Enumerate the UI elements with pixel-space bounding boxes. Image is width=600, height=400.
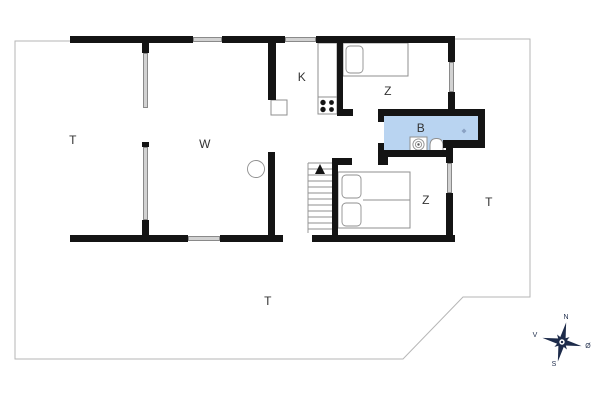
compass-south-label: S bbox=[552, 361, 557, 368]
wall-living-hall bbox=[268, 152, 275, 235]
label-bedroom-top: Z bbox=[384, 84, 392, 98]
wall-east-3 bbox=[446, 148, 453, 163]
stairs bbox=[308, 163, 332, 233]
plan-graphics: N V Ø S bbox=[0, 0, 600, 400]
cooktop bbox=[318, 97, 337, 114]
bathroom-door-marker bbox=[462, 129, 467, 134]
floorplan-canvas: N V Ø S T W K Z B Z T T bbox=[0, 0, 600, 400]
window-east-bedroom-top bbox=[449, 62, 454, 92]
compass-east-label: Ø bbox=[585, 343, 591, 350]
wall-bathroom-left-upper bbox=[378, 109, 384, 122]
wall-bedroom-lower-door-post bbox=[378, 157, 388, 165]
wall-living-kitchen bbox=[268, 36, 276, 100]
bed-double bbox=[338, 172, 410, 228]
compass-west-label: V bbox=[533, 332, 538, 339]
wall-bathroom-bottom bbox=[378, 150, 447, 157]
window-east-bedroom-lower bbox=[447, 163, 452, 193]
wall-bathroom-extension-bottom bbox=[443, 140, 485, 148]
window-west-upper bbox=[143, 53, 148, 108]
label-living-room: W bbox=[199, 137, 211, 151]
label-terrace-bottom: T bbox=[264, 294, 272, 308]
kitchen-counter bbox=[318, 43, 337, 97]
window-north-kitchen bbox=[285, 37, 316, 42]
wall-south-2 bbox=[220, 235, 283, 242]
wall-east-4 bbox=[446, 193, 453, 235]
wall-bathroom-top bbox=[378, 109, 485, 116]
wall-south-1 bbox=[70, 235, 188, 242]
wall-stairs-bedroom bbox=[332, 158, 338, 235]
wall-west-1 bbox=[142, 43, 149, 53]
label-bedroom-lower: Z bbox=[422, 193, 430, 207]
label-bathroom: B bbox=[417, 121, 426, 135]
wall-west-3 bbox=[142, 220, 149, 235]
label-kitchen: K bbox=[298, 70, 307, 84]
label-terrace-left: T bbox=[69, 133, 77, 147]
wall-kitchen-bedroom bbox=[337, 36, 343, 109]
wall-north-1 bbox=[70, 36, 193, 43]
wall-bedroom-top-door-post bbox=[337, 109, 353, 116]
wall-east-2 bbox=[448, 92, 455, 109]
window-north-living bbox=[193, 37, 222, 42]
kitchen-cabinet bbox=[271, 100, 287, 115]
compass-north-label: N bbox=[563, 314, 568, 321]
window-west-lower bbox=[143, 147, 148, 220]
wall-bathroom-left-lower bbox=[378, 143, 384, 157]
wood-stove bbox=[248, 161, 265, 178]
wall-south-3 bbox=[312, 235, 455, 242]
wall-east-1 bbox=[448, 43, 455, 62]
window-south-living bbox=[188, 236, 220, 241]
label-terrace-right: T bbox=[485, 195, 493, 209]
compass-rose: N V Ø S bbox=[533, 314, 592, 368]
bed-single bbox=[343, 43, 408, 76]
